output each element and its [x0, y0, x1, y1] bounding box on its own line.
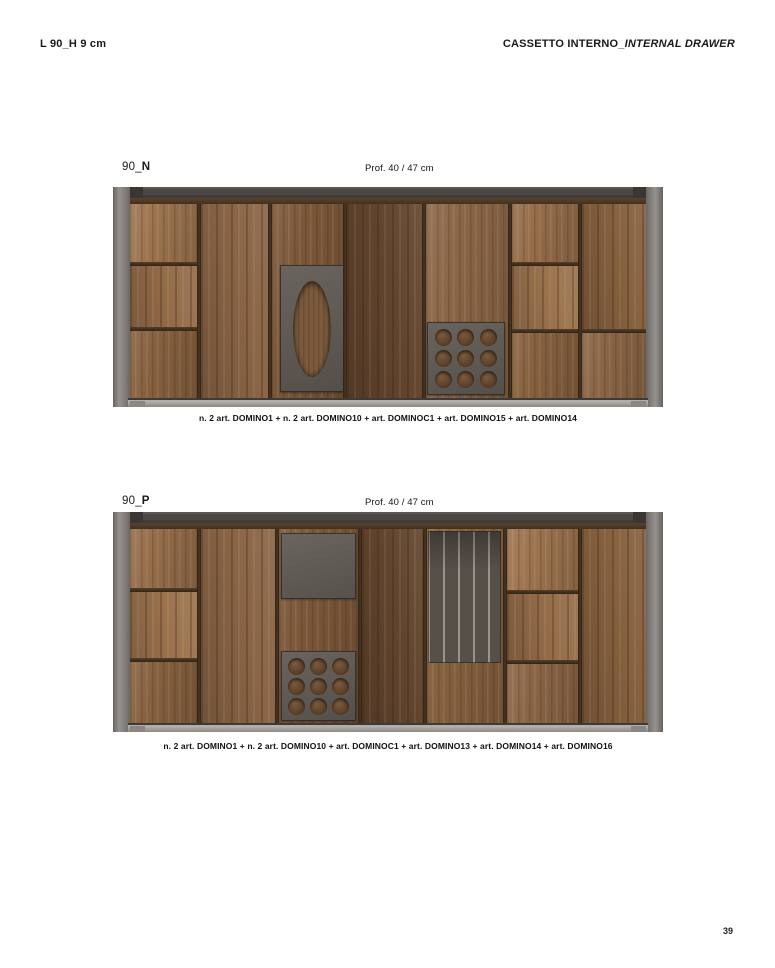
wood-compartment [582, 333, 646, 398]
round-cutout [332, 678, 349, 695]
wood-compartment [130, 662, 197, 723]
round-cutout [310, 698, 327, 715]
figure-caption-90p: n. 2 art. DOMINO1 + n. 2 art. DOMINO10 +… [113, 741, 663, 751]
wood-compartment [362, 529, 423, 723]
round-cutout [480, 329, 497, 346]
wood-compartment [130, 204, 197, 262]
header-title-translation: INTERNAL DRAWER [625, 38, 735, 50]
drawer-frame-right [646, 187, 663, 407]
round-cutout [435, 329, 452, 346]
drawer-frame-left [113, 512, 130, 732]
drawer-frame-right [646, 512, 663, 732]
drawer-photo-90n [113, 187, 663, 407]
spice-holes-insert [427, 322, 505, 395]
wood-compartment [512, 333, 578, 398]
wood-compartment [582, 204, 646, 329]
round-cutout [480, 371, 497, 388]
round-cutout [457, 371, 474, 388]
wood-compartment [130, 529, 197, 588]
round-cutout [288, 658, 305, 675]
drawer-foot [130, 401, 145, 407]
knife-block-insert [428, 531, 501, 663]
wood-compartment [507, 529, 578, 590]
drawer-frame-left [113, 187, 130, 407]
oval-cutout [293, 281, 331, 377]
drawer-interior [130, 523, 646, 723]
wood-compartment [347, 204, 422, 398]
figure-label-90n: 90_N [122, 161, 150, 173]
drawer-frame-top [128, 187, 648, 198]
catalog-page: L 90_H 9 cm CASSETTO INTERNO_INTERNAL DR… [0, 0, 775, 968]
round-cutout [288, 698, 305, 715]
wood-compartment [130, 266, 197, 327]
wood-compartment [582, 529, 646, 723]
drawer-foot [631, 726, 646, 732]
drawer-frame-top [128, 512, 648, 523]
page-number: 39 [723, 926, 733, 936]
round-cutout [310, 658, 327, 675]
drawer-foot [130, 726, 145, 732]
flat-tray-insert [281, 533, 356, 599]
wood-compartment [512, 266, 578, 329]
header-title-main: CASSETTO INTERNO_ [503, 38, 625, 50]
wood-compartment [507, 594, 578, 660]
figure-caption-90n: n. 2 art. DOMINO1 + n. 2 art. DOMINO10 +… [113, 413, 663, 423]
page-header-dimensions: L 90_H 9 cm [40, 38, 106, 50]
wood-compartment [130, 592, 197, 658]
figure-depth-90n: Prof. 40 / 47 cm [365, 163, 434, 174]
drawer-interior [130, 198, 646, 398]
round-cutout [457, 329, 474, 346]
round-cutout [435, 350, 452, 367]
wood-compartment [201, 204, 268, 398]
tissue-box-insert [280, 265, 344, 392]
drawer-frame-bottom [128, 723, 648, 732]
wood-compartment [130, 331, 197, 398]
round-cutout [435, 371, 452, 388]
drawer-photo-90p [113, 512, 663, 732]
wood-compartment [201, 529, 275, 723]
spice-holes-insert [281, 651, 356, 721]
drawer-frame-bottom [128, 398, 648, 407]
round-cutout [310, 678, 327, 695]
round-cutout [332, 658, 349, 675]
round-cutout [288, 678, 305, 695]
round-cutout [457, 350, 474, 367]
wood-compartment [512, 204, 578, 262]
page-header-title: CASSETTO INTERNO_INTERNAL DRAWER [503, 38, 735, 50]
figure-label-90p: 90_P [122, 495, 150, 507]
figure-depth-90p: Prof. 40 / 47 cm [365, 497, 434, 508]
wood-compartment [507, 664, 578, 723]
round-cutout [480, 350, 497, 367]
drawer-foot [631, 401, 646, 407]
round-cutout [332, 698, 349, 715]
